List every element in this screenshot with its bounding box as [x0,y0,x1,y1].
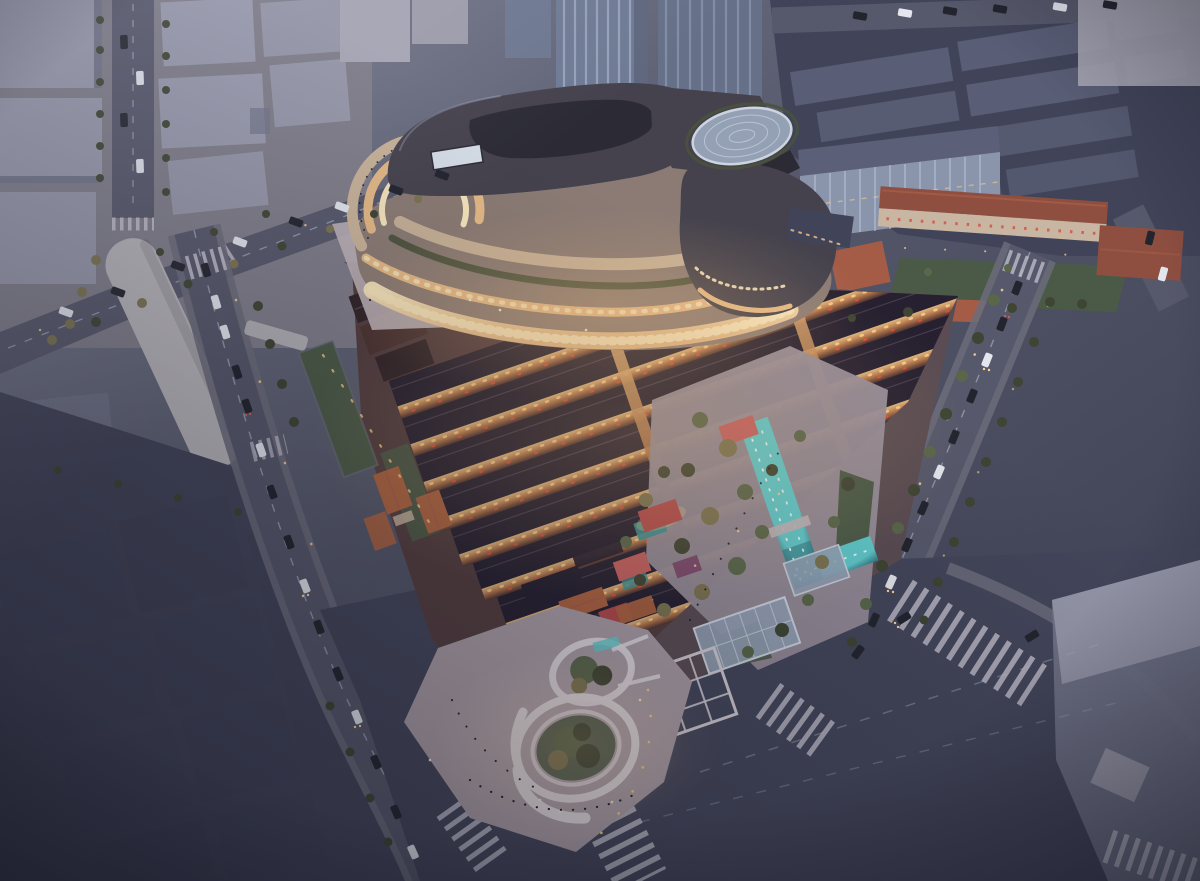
vignette [0,0,1200,881]
aerial-rendering [0,0,1200,881]
